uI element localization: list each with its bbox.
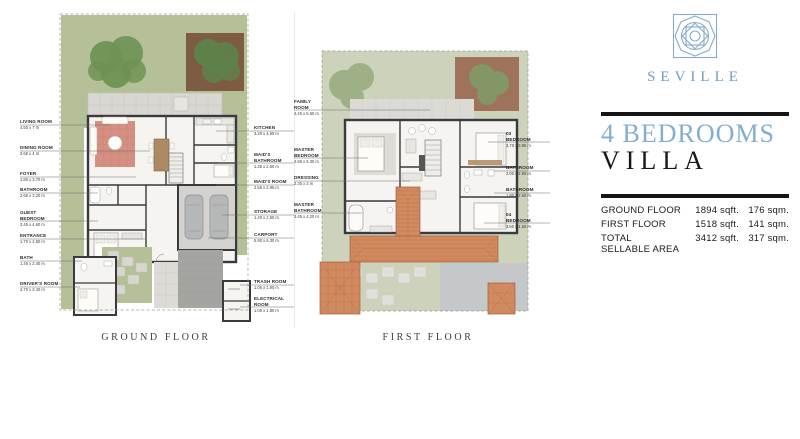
shower (488, 170, 494, 176)
toilet (387, 207, 393, 213)
stove (203, 119, 211, 124)
toilet (465, 186, 470, 193)
room-label-bedroom-04: 04 BEDROOM 3.50 x 4.50 m (506, 212, 532, 230)
heading-bedrooms: 4 BEDROOMS (601, 121, 792, 148)
ground-floor-caption: GROUND FLOOR (18, 332, 294, 343)
room-label-guest-bedroom: GUEST BEDROOM 3.45 x 4.60 m (20, 210, 46, 228)
room-label-kitchen: KITCHEN 3.20 x 4.60 m (254, 125, 294, 137)
desk (406, 139, 416, 153)
brand-name: SEVILLE (598, 69, 792, 86)
area-table: GROUND FLOOR 1894 sqft. 176 sqm. FIRST F… (598, 205, 792, 255)
room-label-bath: BATH 1.45 x 2.40 m (20, 255, 62, 267)
room-label-bathroom: BATHROOM 2.00 x 2.60 m (506, 165, 546, 177)
ground-floor-plan: LIVING ROOM 4.50 x 7 m DINING ROOM 3.65 … (18, 5, 294, 329)
rug-strip (468, 160, 502, 165)
car (210, 195, 228, 239)
closet (402, 173, 422, 181)
toilet (81, 263, 87, 271)
armchair (419, 125, 426, 132)
stair-void (419, 155, 425, 171)
annex (74, 257, 116, 315)
room-label-storage: STORAGE 1.40 x 2.50 m (254, 209, 294, 221)
sink (474, 170, 482, 175)
staircase (169, 153, 183, 183)
room-label-master-bedroom: MASTER BEDROOM 4.55 x 5.30 m (294, 147, 324, 165)
first-floor-plan: FAMILY ROOM 4.45 x 5.50 m MASTER BEDROOM… (292, 5, 564, 329)
area-row-first-floor: FIRST FLOOR 1518 sqft. 141 sqm. (601, 219, 789, 230)
house (345, 120, 517, 233)
coffee-table (108, 136, 122, 150)
room-label-bathroom: BATHROOM 2.65 x 3.20 m (20, 187, 62, 199)
room-label-electrical-room: ELECTRICAL ROOM 1.05 x 1.90 m (254, 296, 284, 314)
room-label-drivers-room: DRIVER'S ROOM 2.70 x 2.40 m (20, 281, 62, 293)
seville-logo-icon (672, 13, 718, 59)
toilet (107, 188, 112, 195)
utility-rooms (223, 281, 250, 321)
sofa (102, 117, 128, 124)
wardrobe (122, 233, 142, 239)
room-label-family-room: FAMILY ROOM 4.45 x 5.50 m (294, 99, 324, 117)
carport (178, 185, 236, 250)
staircase (425, 140, 441, 176)
divider-bar-top (601, 112, 789, 116)
room-label-dining-room: DINING ROOM 3.65 x 4 m (20, 145, 62, 157)
room-label-carport: CARPORT 5.90 x 6.30 m (254, 232, 294, 244)
room-label-maids-bathroom: MAID'S BATHROOM 1.35 x 2.50 m (254, 152, 284, 170)
vanity (370, 226, 392, 232)
area-row-total: TOTAL SELLABLE AREA 3412 sqft. 317 sqm. (601, 233, 789, 255)
car (185, 195, 203, 239)
brochure-page: LIVING ROOM 4.50 x 7 m DINING ROOM 3.65 … (0, 0, 800, 439)
toilet (465, 172, 470, 179)
info-panel: SEVILLE 4 BEDROOMS VILLA GROUND FLOOR 18… (598, 13, 792, 258)
room-label-living-room: LIVING ROOM 4.50 x 7 m (20, 119, 62, 131)
bathtub (349, 205, 363, 231)
bathtub (90, 187, 100, 203)
armchair (429, 128, 436, 135)
patio (88, 93, 222, 116)
divider-bar-bottom (601, 194, 789, 198)
armchair (409, 128, 416, 135)
room-label-foyer: FOYER 1.80 x 3.70 m (20, 171, 62, 183)
area-row-ground-floor: GROUND FLOOR 1894 sqft. 176 sqm. (601, 205, 789, 216)
dining-table (154, 139, 169, 171)
first-floor-caption: FIRST FLOOR (292, 332, 564, 343)
room-label-dressing: DRESSING 2.30 x 3 m (294, 175, 324, 187)
driveway (178, 250, 223, 308)
heading-villa: VILLA (601, 148, 792, 175)
room-label-bathroom: BATHROOM 1.90 x 2.60 m (506, 187, 546, 199)
room-label-bedroom-03: 03 BEDROOM 3.70 x 3.95 m (506, 131, 532, 149)
sink (104, 261, 112, 266)
room-label-trash-room: TRASH ROOM 1.05 x 1.90 m (254, 279, 294, 291)
toilet (222, 154, 227, 161)
room-label-master-bathroom: MASTER BATHROOM 3.45 x 4.20 m (294, 202, 324, 220)
room-label-maids-room: MAID'S ROOM 2.55 x 2.95 m (254, 179, 294, 191)
room-label-entrance: ENTRANCE 1.70 x 2.50 m (20, 233, 62, 245)
sink (214, 119, 221, 124)
logo-row (598, 13, 792, 59)
